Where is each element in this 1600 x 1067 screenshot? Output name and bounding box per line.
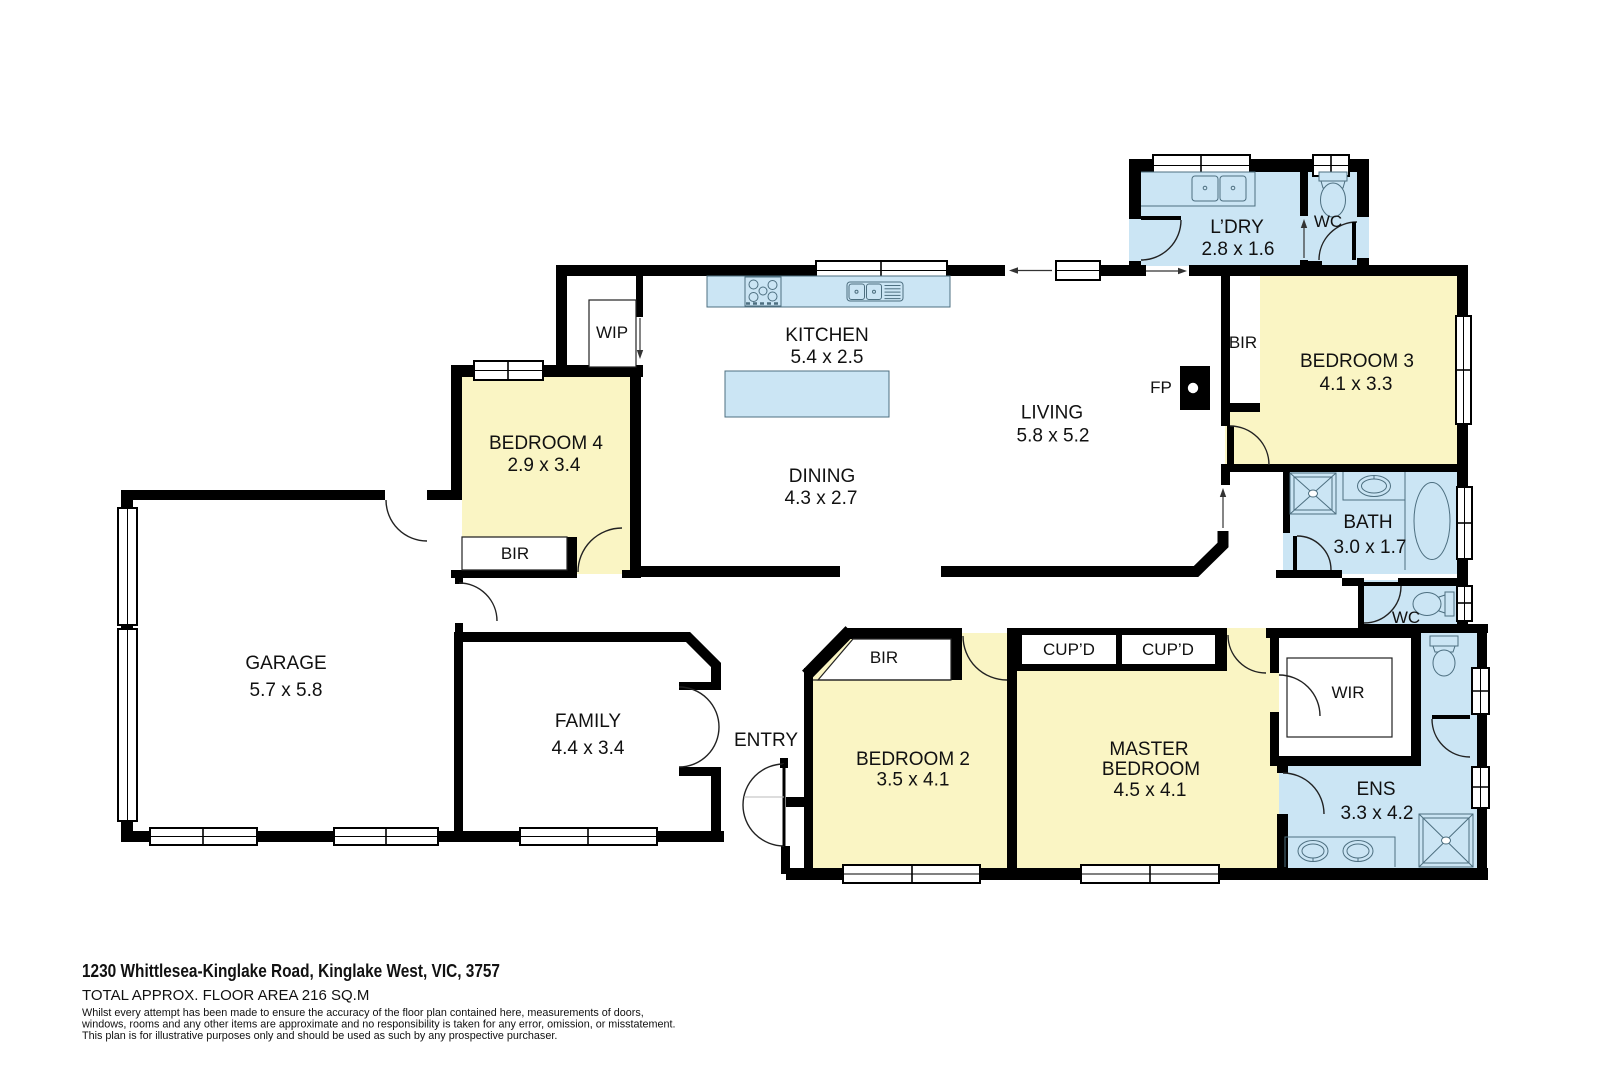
svg-text:CUP’D: CUP’D [1142,640,1194,659]
svg-text:BIR: BIR [1229,333,1257,352]
svg-text:BEDROOM 2: BEDROOM 2 [856,749,970,770]
svg-text:DINING: DINING [789,466,856,487]
svg-text:2.9 x 3.4: 2.9 x 3.4 [508,455,581,476]
svg-text:BATH: BATH [1343,512,1392,533]
svg-text:4.4 x 3.4: 4.4 x 3.4 [552,738,625,759]
svg-text:FP: FP [1150,378,1172,397]
svg-text:3.3 x 4.2: 3.3 x 4.2 [1341,803,1414,824]
svg-text:1230 Whittlesea-Kinglake Road,: 1230 Whittlesea-Kinglake Road, Kinglake … [82,960,500,981]
svg-text:ENS: ENS [1356,779,1395,800]
svg-text:3.5 x 4.1: 3.5 x 4.1 [877,770,950,791]
svg-text:WIP: WIP [596,323,628,342]
svg-text:2.8 x 1.6: 2.8 x 1.6 [1202,239,1275,260]
svg-text:FAMILY: FAMILY [555,711,621,732]
svg-text:4.1 x 3.3: 4.1 x 3.3 [1320,374,1393,395]
svg-text:5.4 x 2.5: 5.4 x 2.5 [791,347,864,368]
svg-text:Whilst every attempt has been: Whilst every attempt has been made to en… [82,1007,644,1019]
svg-text:5.7 x 5.8: 5.7 x 5.8 [250,680,323,701]
svg-text:L’DRY: L’DRY [1210,217,1264,238]
svg-text:KITCHEN: KITCHEN [785,325,868,346]
svg-text:GARAGE: GARAGE [245,653,326,674]
svg-text:MASTER: MASTER [1109,739,1188,760]
svg-text:BIR: BIR [870,648,898,667]
svg-text:4.3 x 2.7: 4.3 x 2.7 [785,488,858,509]
svg-text:TOTAL APPROX. FLOOR AREA 216 S: TOTAL APPROX. FLOOR AREA 216 SQ.M [82,987,369,1004]
svg-text:windows, rooms and any other i: windows, rooms and any other items are a… [81,1019,676,1031]
svg-text:BEDROOM: BEDROOM [1102,759,1200,780]
svg-text:This plan is for illustrative: This plan is for illustrative purposes o… [82,1030,557,1042]
svg-text:CUP’D: CUP’D [1043,640,1095,659]
svg-text:WC: WC [1314,212,1342,231]
svg-text:LIVING: LIVING [1021,403,1083,424]
svg-text:BIR: BIR [501,544,529,563]
svg-text:3.0 x 1.7: 3.0 x 1.7 [1334,537,1407,558]
svg-text:ENTRY: ENTRY [734,730,798,751]
svg-text:4.5 x 4.1: 4.5 x 4.1 [1114,780,1187,801]
svg-text:WIR: WIR [1331,683,1364,702]
svg-text:BEDROOM 3: BEDROOM 3 [1300,351,1414,372]
svg-text:BEDROOM 4: BEDROOM 4 [489,433,603,454]
svg-text:WC: WC [1392,608,1420,627]
svg-text:5.8 x 5.2: 5.8 x 5.2 [1017,426,1090,447]
